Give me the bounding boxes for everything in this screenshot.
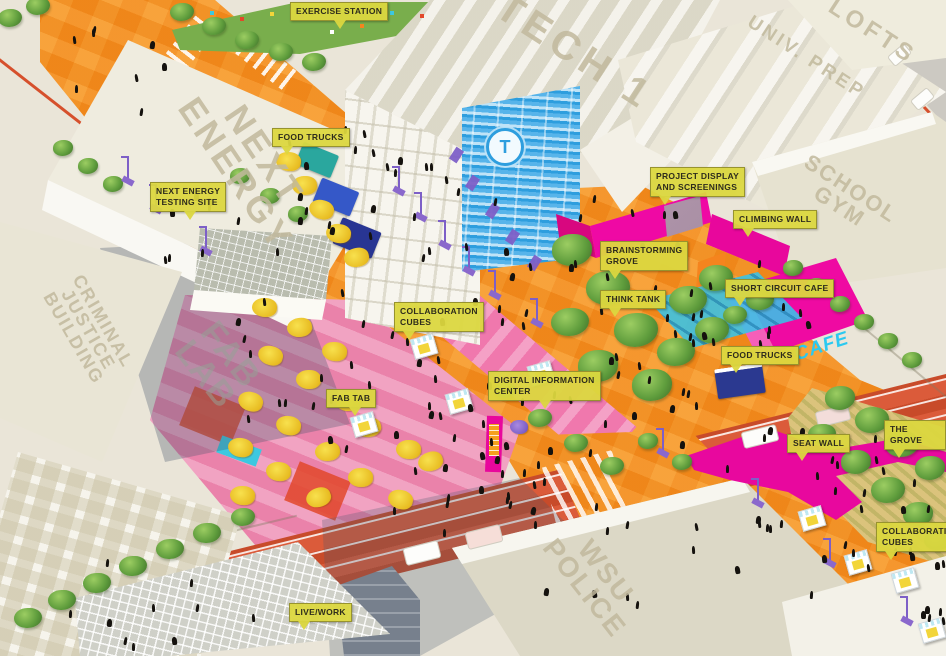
street-lamp: [757, 480, 759, 501]
umbrella-canopy: [342, 245, 371, 269]
person-silhouette: [162, 63, 167, 71]
person-silhouette: [442, 463, 448, 472]
person-silhouette: [135, 74, 139, 82]
person-silhouette: [699, 310, 703, 318]
person-silhouette: [843, 541, 847, 549]
hedge-accent: [420, 14, 424, 18]
person-silhouette: [500, 318, 504, 326]
person-silhouette: [632, 412, 637, 420]
person-silhouette: [443, 529, 446, 537]
callout-seat-wall: SEAT WALL: [787, 434, 850, 453]
tree: [632, 369, 673, 400]
person-silhouette: [452, 434, 456, 442]
tree: [78, 158, 98, 174]
person-silhouette: [385, 163, 389, 171]
person-silhouette: [304, 162, 310, 170]
hedge-accent: [360, 24, 364, 28]
person-silhouette: [74, 85, 77, 93]
tree: [193, 523, 220, 544]
person-silhouette: [758, 260, 762, 268]
tree: [672, 454, 692, 470]
person-silhouette: [421, 254, 425, 262]
person-silhouette: [168, 254, 171, 262]
person-silhouette: [447, 494, 451, 502]
person-silhouette: [479, 452, 485, 461]
person-silhouette: [626, 521, 630, 529]
person-silhouette: [695, 402, 698, 410]
person-silhouette: [106, 558, 110, 566]
person-silhouette: [106, 619, 112, 627]
tree: [103, 176, 123, 192]
tree: [600, 457, 624, 475]
person-silhouette: [92, 26, 96, 34]
person-silhouette: [942, 617, 946, 625]
person-silhouette: [445, 176, 449, 184]
umbrella-canopy: [304, 484, 334, 510]
person-silhouette: [430, 163, 433, 171]
person-silhouette: [438, 412, 442, 420]
person-silhouette: [368, 381, 372, 389]
umbrella-canopy: [227, 436, 254, 458]
person-silhouette: [171, 636, 177, 645]
person-silhouette: [617, 371, 621, 379]
tree: [302, 53, 326, 71]
person-silhouette: [935, 562, 940, 570]
person-silhouette: [913, 479, 916, 487]
tree: [552, 234, 593, 265]
person-silhouette: [830, 456, 835, 464]
person-silhouette: [436, 356, 440, 364]
person-silhouette: [780, 520, 784, 528]
person-silhouette: [544, 587, 550, 596]
tree: [551, 308, 588, 337]
person-silhouette: [537, 461, 540, 469]
tree: [53, 140, 73, 156]
callout-climbing-wall: CLIMBING WALL: [733, 210, 817, 229]
callout-collaboration-cubes-southeast: COLLABORATION CUBES: [876, 522, 946, 552]
person-silhouette: [767, 326, 770, 334]
person-silhouette: [925, 606, 930, 614]
umbrella-canopy: [275, 414, 303, 437]
person-silhouette: [390, 331, 394, 339]
street-lamp: [398, 168, 400, 189]
person-silhouette: [252, 614, 256, 622]
umbrella-canopy: [348, 468, 373, 488]
person-silhouette: [593, 195, 597, 203]
person-silhouette: [479, 486, 484, 494]
tree: [170, 3, 194, 21]
hedge-accent: [210, 11, 214, 15]
site-plan-rendering: NEXT ENERGY TECH 1 CRIMINAL JUSTICE BUIL…: [0, 0, 946, 656]
person-silhouette: [489, 438, 492, 446]
street-lamp: [420, 194, 422, 215]
collaboration-cube: [891, 567, 920, 594]
callout-exercise-station: EXERCISE STATION: [290, 2, 388, 21]
person-silhouette: [672, 211, 678, 220]
person-silhouette: [328, 435, 334, 444]
person-silhouette: [494, 455, 500, 464]
techtown-logo: T: [486, 128, 524, 166]
callout-collaboration-cubes-central: COLLABORATION CUBES: [394, 302, 484, 332]
person-silhouette: [354, 146, 358, 154]
person-silhouette: [939, 608, 942, 616]
tree: [231, 508, 255, 526]
person-silhouette: [682, 388, 686, 396]
callout-short-circuit-cafe: SHORT CIRCUIT CAFE: [725, 279, 834, 298]
callout-think-tank: THINK TANK: [600, 290, 666, 309]
person-silhouette: [497, 305, 501, 313]
person-silhouette: [152, 604, 155, 612]
tree: [902, 352, 922, 368]
person-silhouette: [534, 521, 537, 529]
person-silhouette: [123, 637, 127, 645]
person-silhouette: [734, 566, 740, 575]
person-silhouette: [691, 313, 695, 321]
person-silhouette: [726, 465, 729, 473]
umbrella-canopy: [286, 316, 314, 339]
tree: [825, 386, 856, 409]
person-silhouette: [428, 401, 431, 409]
tree: [48, 590, 75, 611]
street-lamp: [662, 430, 664, 451]
person-silhouette: [615, 353, 619, 361]
callout-fab-tab: FAB TAB: [326, 389, 376, 408]
callout-next-energy-testing-site: NEXT ENERGY TESTING SITE: [150, 182, 226, 212]
person-silhouette: [852, 549, 855, 557]
person-silhouette: [368, 232, 372, 240]
person-silhouette: [859, 504, 863, 512]
person-silhouette: [140, 108, 144, 116]
street-lamp: [444, 222, 446, 243]
person-silhouette: [692, 339, 696, 347]
person-silhouette: [237, 216, 241, 224]
person-silhouette: [345, 445, 349, 453]
person-silhouette: [504, 442, 510, 451]
tree: [564, 434, 588, 452]
person-silhouette: [468, 403, 474, 412]
person-silhouette: [768, 426, 774, 435]
person-silhouette: [522, 469, 525, 477]
callout-the-grove: THE GROVE: [884, 420, 946, 450]
umbrella-canopy: [265, 461, 291, 482]
umbrella-canopy: [296, 370, 321, 389]
person-silhouette: [190, 579, 194, 587]
person-silhouette: [666, 314, 669, 322]
person-silhouette: [200, 249, 204, 257]
street-lamp: [468, 248, 470, 269]
tree: [235, 31, 259, 49]
person-silhouette: [247, 415, 251, 423]
tree: [854, 314, 874, 330]
tree: [841, 450, 872, 473]
person-silhouette: [769, 525, 772, 533]
person-silhouette: [874, 435, 877, 443]
callout-live-work: LIVE/WORK: [289, 603, 352, 622]
tree: [269, 43, 293, 61]
person-silhouette: [630, 209, 634, 217]
street-lamp: [127, 158, 129, 179]
person-silhouette: [284, 399, 288, 407]
person-silhouette: [806, 320, 813, 329]
callout-digital-information-center: DIGITAL INFORMATION CENTER: [488, 371, 601, 401]
umbrella-canopy: [386, 487, 415, 511]
callout-project-display: PROJECT DISPLAY AND SCREENINGS: [650, 167, 745, 197]
person-silhouette: [428, 411, 434, 420]
person-silhouette: [394, 169, 397, 177]
person-silhouette: [663, 211, 666, 219]
person-silhouette: [695, 523, 699, 531]
person-silhouette: [810, 591, 814, 599]
person-silhouette: [362, 319, 366, 327]
person-silhouette: [530, 506, 537, 515]
street-lamp: [829, 540, 831, 561]
person-silhouette: [394, 431, 399, 439]
person-silhouette: [901, 506, 907, 514]
street-banner: [449, 147, 464, 164]
hedge-accent: [270, 12, 274, 16]
person-silhouette: [799, 309, 803, 317]
street-lamp: [205, 228, 207, 249]
umbrella-canopy: [321, 341, 348, 362]
person-silhouette: [434, 375, 438, 383]
person-silhouette: [882, 467, 886, 475]
person-silhouette: [235, 318, 241, 327]
person-silhouette: [822, 555, 828, 563]
tree: [202, 17, 226, 35]
person-silhouette: [416, 359, 422, 368]
tree: [119, 556, 146, 577]
person-silhouette: [370, 204, 376, 213]
person-silhouette: [528, 263, 532, 271]
person-silhouette: [457, 188, 461, 196]
person-silhouette: [941, 560, 945, 568]
person-silhouette: [595, 503, 599, 511]
tree: [83, 573, 110, 594]
person-silhouette: [362, 130, 366, 138]
tree: [878, 333, 898, 349]
tree: [783, 260, 803, 276]
person-silhouette: [691, 546, 694, 554]
person-silhouette: [465, 243, 469, 251]
person-silhouette: [524, 309, 528, 317]
person-silhouette: [163, 256, 167, 264]
callout-brainstorming-grove: BRAINSTORMING GROVE: [600, 241, 688, 271]
person-silhouette: [414, 467, 418, 475]
person-silhouette: [763, 434, 766, 442]
person-silhouette: [150, 41, 156, 50]
collaboration-cube: [798, 505, 827, 532]
tree: [26, 0, 50, 15]
tree: [638, 433, 658, 449]
person-silhouette: [503, 248, 509, 256]
person-silhouette: [72, 35, 76, 43]
person-silhouette: [425, 163, 429, 171]
street-banner: [465, 175, 480, 192]
tree: [156, 539, 183, 560]
person-silhouette: [277, 398, 281, 406]
person-silhouette: [482, 420, 485, 428]
umbrella-canopy: [510, 420, 528, 434]
person-silhouette: [372, 149, 376, 157]
person-silhouette: [69, 610, 72, 618]
person-silhouette: [836, 461, 839, 469]
person-silhouette: [686, 390, 690, 398]
tree: [830, 296, 850, 312]
hedge-accent: [390, 11, 394, 15]
tree: [915, 456, 946, 479]
person-silhouette: [509, 272, 516, 281]
callout-food-trucks-north: FOOD TRUCKS: [272, 128, 350, 147]
person-silhouette: [863, 489, 867, 497]
tree: [0, 9, 22, 27]
person-silhouette: [427, 246, 431, 254]
person-silhouette: [262, 298, 266, 306]
street-banner: [505, 229, 520, 246]
person-silhouette: [501, 470, 504, 478]
tree: [14, 608, 41, 629]
person-silhouette: [340, 289, 344, 297]
street-lamp: [906, 598, 908, 619]
person-silhouette: [312, 401, 316, 409]
street-lamp: [494, 272, 496, 293]
person-silhouette: [637, 362, 641, 370]
person-silhouette: [782, 303, 785, 311]
person-silhouette: [398, 157, 403, 165]
umbrella-canopy: [396, 440, 421, 459]
person-silhouette: [604, 420, 607, 428]
person-silhouette: [605, 527, 609, 535]
person-silhouette: [521, 322, 525, 330]
person-silhouette: [834, 486, 837, 494]
street-lamp: [536, 300, 538, 321]
tree: [657, 338, 694, 367]
callout-food-trucks-east: FOOD TRUCKS: [721, 346, 799, 365]
person-silhouette: [669, 405, 675, 414]
person-silhouette: [816, 472, 820, 480]
person-silhouette: [543, 478, 546, 486]
person-silhouette: [874, 456, 878, 464]
person-silhouette: [350, 361, 354, 369]
tree: [871, 477, 905, 503]
hedge-accent: [240, 17, 244, 21]
person-silhouette: [132, 643, 135, 651]
person-silhouette: [680, 441, 686, 449]
collaboration-cube: [844, 549, 873, 576]
person-silhouette: [578, 214, 582, 222]
street-banner: [485, 203, 500, 220]
person-silhouette: [320, 374, 323, 382]
person-silhouette: [393, 506, 396, 514]
umbrella-canopy: [229, 485, 255, 506]
person-silhouette: [532, 481, 536, 489]
umbrella-canopy: [314, 440, 341, 462]
person-silhouette: [589, 449, 593, 457]
person-silhouette: [673, 330, 677, 338]
person-silhouette: [196, 604, 200, 612]
person-silhouette: [548, 447, 553, 455]
